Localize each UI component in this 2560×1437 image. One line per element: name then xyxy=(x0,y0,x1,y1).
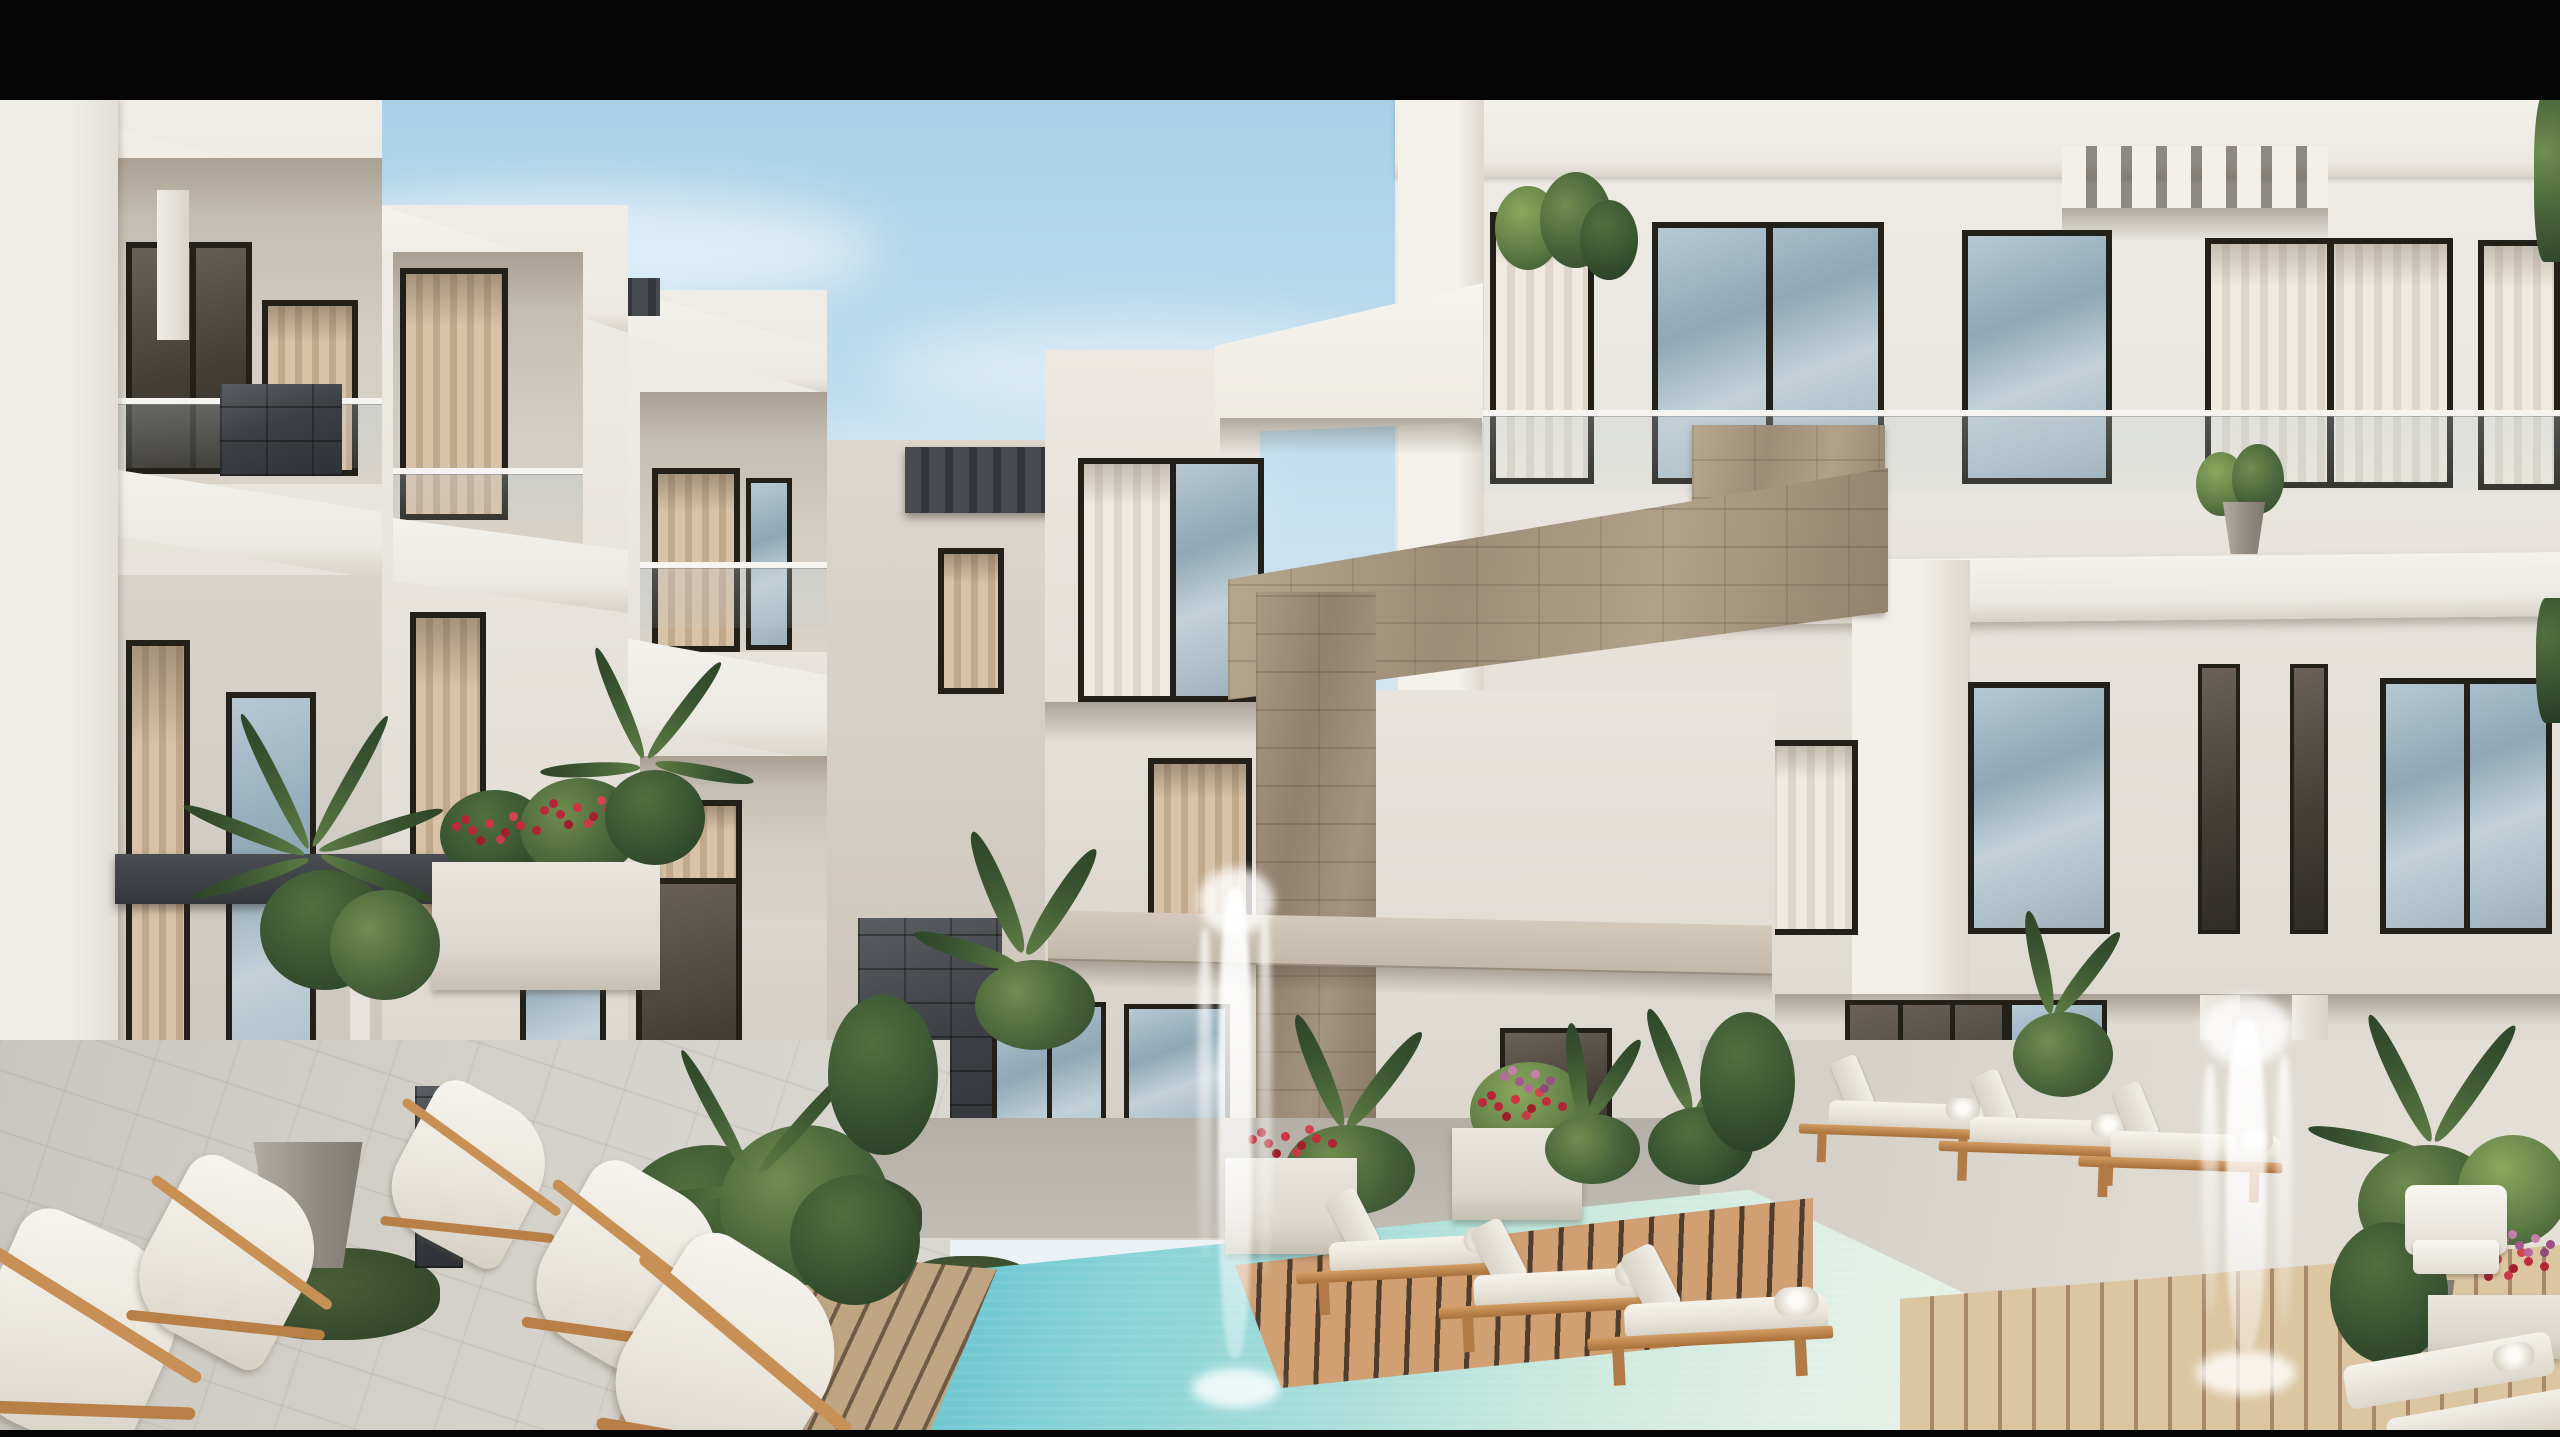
window-wing xyxy=(938,548,1004,694)
window-mid-4 xyxy=(2380,678,2552,934)
architectural-render-scene xyxy=(0,0,2560,1437)
shrub xyxy=(1700,1012,1795,1152)
letterbox-top xyxy=(0,0,2560,100)
slab-shadow xyxy=(1045,702,1260,742)
fountain xyxy=(1190,868,1282,1416)
dark-canopy xyxy=(905,447,1053,513)
window-mid-3 xyxy=(1968,682,2110,934)
banana-plant xyxy=(935,850,1125,1045)
window-slot-2 xyxy=(2290,664,2328,934)
bird-of-paradise xyxy=(1985,928,2125,1108)
building-left-pillar xyxy=(0,100,118,1144)
pergola-slats xyxy=(2062,146,2328,208)
pink-flowers xyxy=(1500,1072,1509,1081)
shrub xyxy=(828,995,938,1155)
balcony-glass-top xyxy=(1482,416,2560,492)
red-flowers xyxy=(1478,1098,1487,1107)
balcony-glass xyxy=(640,568,827,628)
overhang-shadow xyxy=(1220,418,1482,454)
window-slot-1 xyxy=(2198,664,2240,934)
palm-plant xyxy=(550,640,750,880)
edge-plant xyxy=(2534,92,2560,262)
red-flowers xyxy=(540,806,549,815)
balcony-column xyxy=(157,190,189,340)
terrace-plant-foliage xyxy=(1580,200,1638,280)
sun-lounger xyxy=(1564,1251,1836,1397)
palm-plant xyxy=(180,690,460,1010)
planter-box xyxy=(432,862,660,990)
fountain xyxy=(2188,995,2306,1403)
armchair-seat xyxy=(2413,1240,2499,1274)
letterbox-bottom xyxy=(0,1430,2560,1437)
balcony-glass xyxy=(393,474,583,520)
edge-plant xyxy=(2536,598,2560,723)
facade-pillar xyxy=(1852,560,1970,1000)
slate-planter-box xyxy=(220,384,342,476)
